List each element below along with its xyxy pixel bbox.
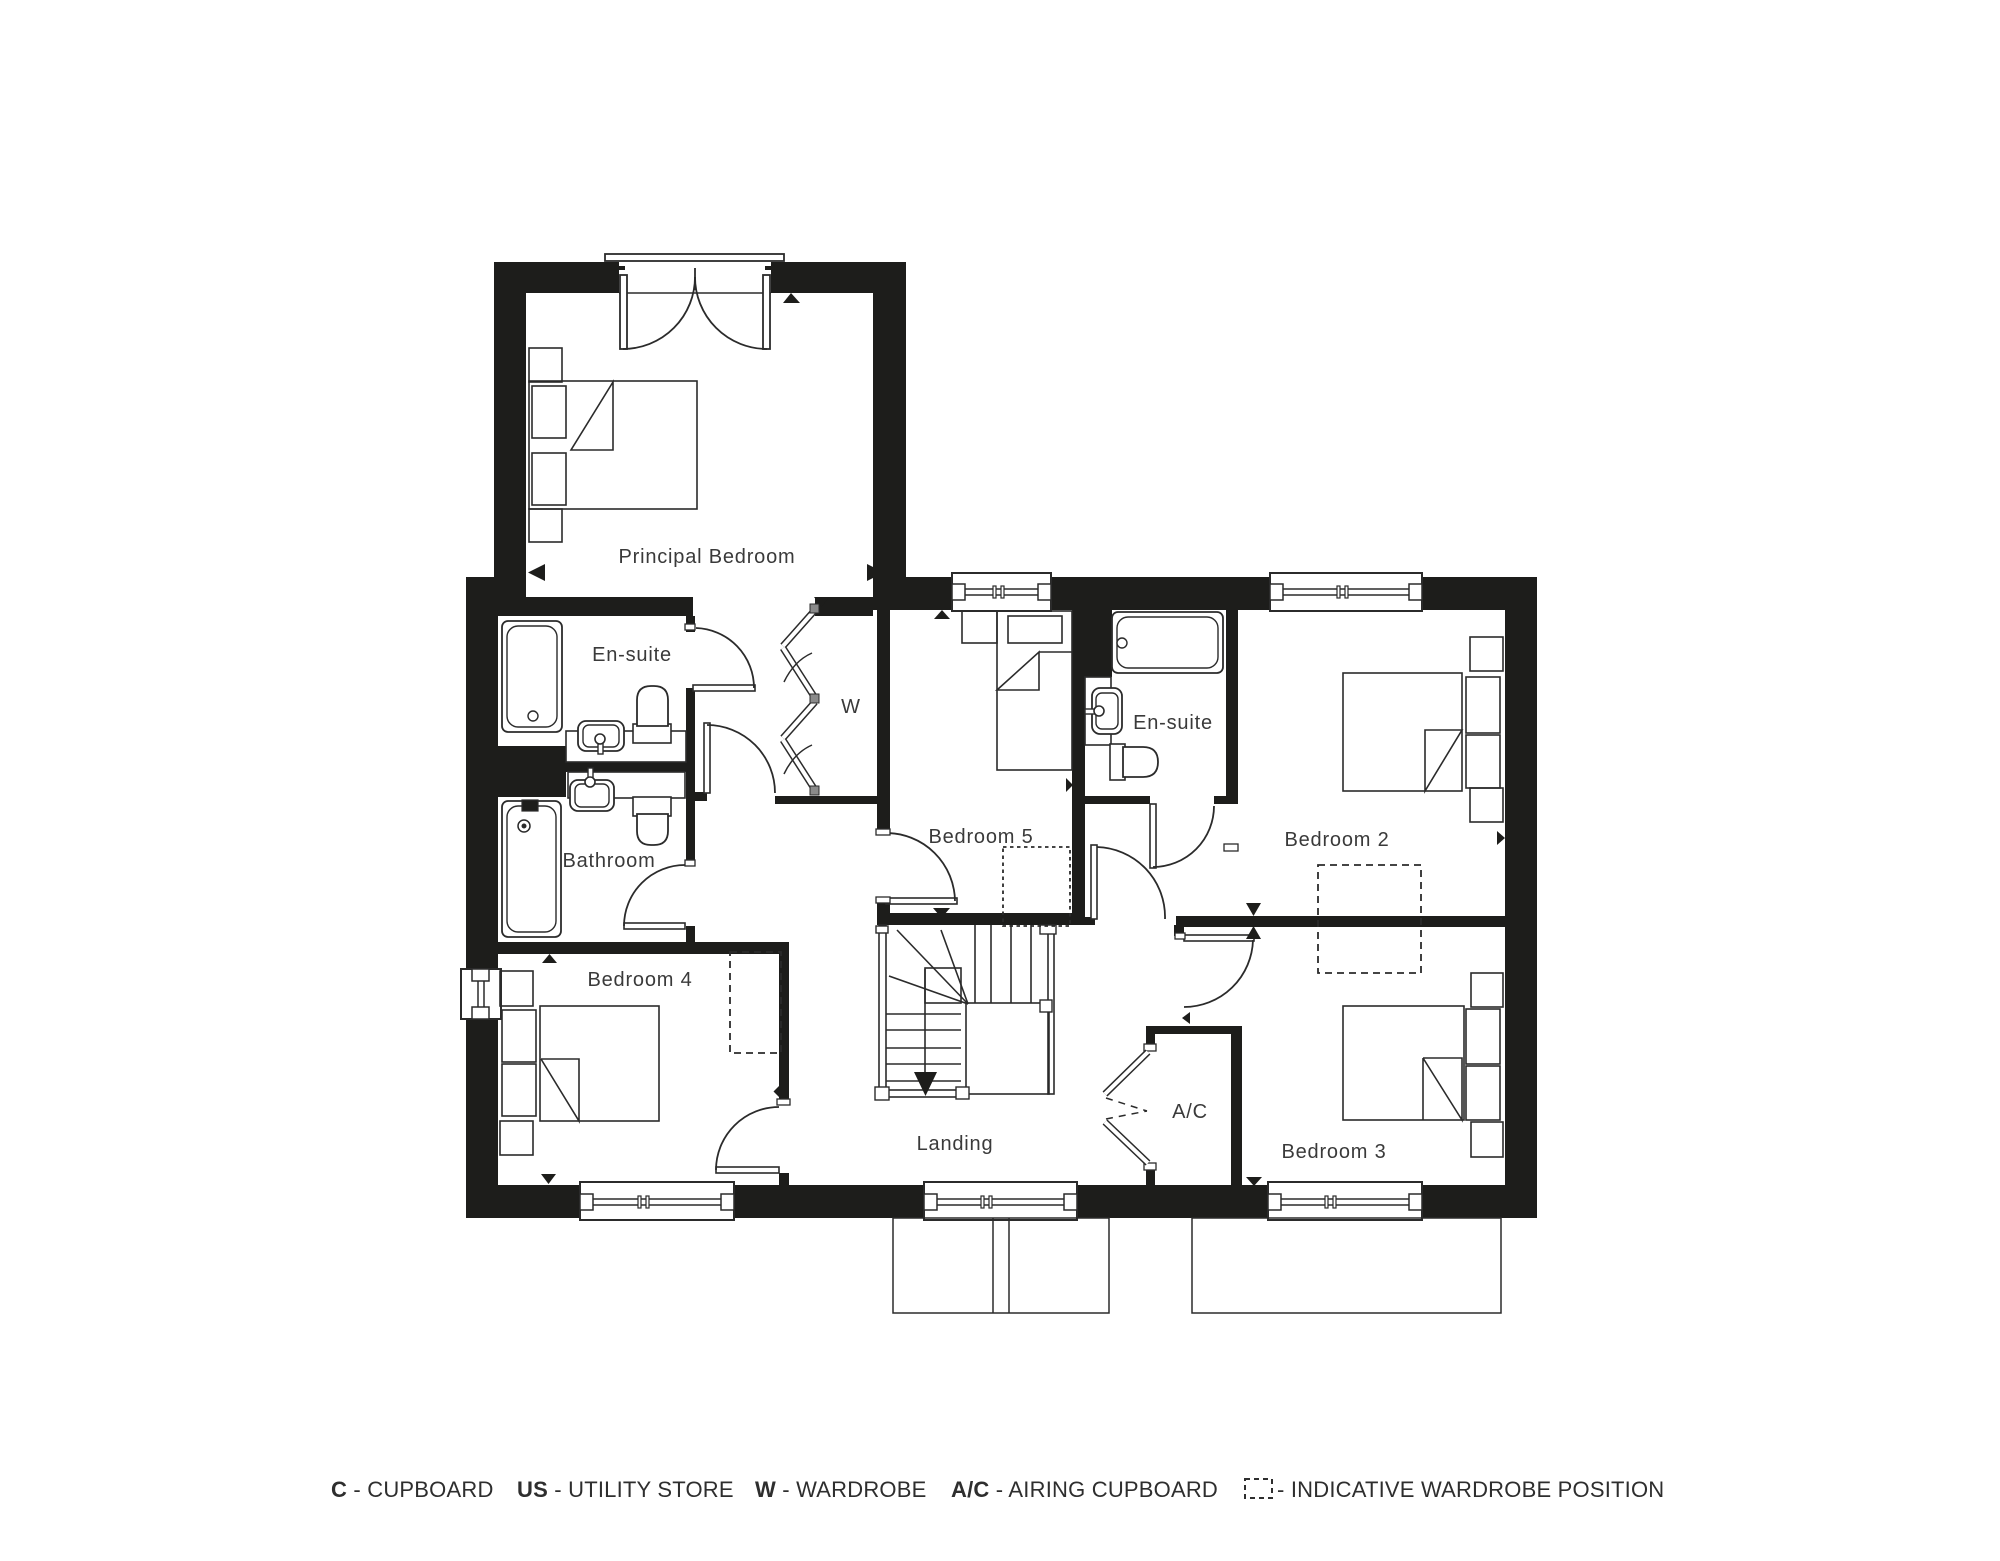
svg-text:Landing: Landing (917, 1133, 994, 1155)
svg-text:W: W (841, 696, 861, 718)
svg-text:En-suite: En-suite (592, 644, 672, 666)
svg-text:W - WARDROBE: W - WARDROBE (755, 1477, 926, 1502)
svg-text:A/C - AIRING CUPBOARD: A/C - AIRING CUPBOARD (951, 1477, 1218, 1502)
svg-text:Bedroom 3: Bedroom 3 (1281, 1141, 1386, 1163)
svg-text:Bedroom 4: Bedroom 4 (587, 969, 692, 991)
svg-text:Principal Bedroom: Principal Bedroom (618, 546, 795, 568)
svg-text:C - CUPBOARD: C - CUPBOARD (331, 1477, 494, 1502)
svg-text:En-suite: En-suite (1133, 712, 1213, 734)
svg-text:Bedroom 5: Bedroom 5 (928, 826, 1033, 848)
svg-text:- INDICATIVE WARDROBE POSITION: - INDICATIVE WARDROBE POSITION (1277, 1477, 1664, 1502)
svg-text:A/C: A/C (1172, 1101, 1208, 1123)
svg-text:US - UTILITY STORE: US - UTILITY STORE (517, 1477, 734, 1502)
svg-text:Bathroom: Bathroom (562, 850, 655, 872)
svg-text:Bedroom 2: Bedroom 2 (1284, 829, 1389, 851)
